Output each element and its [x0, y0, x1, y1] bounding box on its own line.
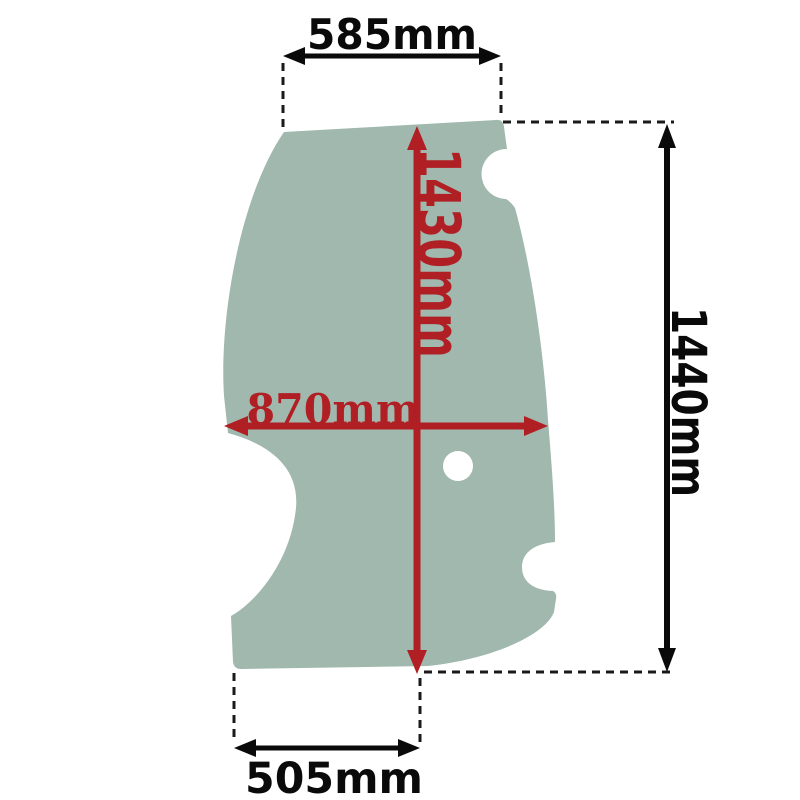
- glass-width-label: 870mm: [247, 385, 420, 434]
- arrowhead-right-icon: [479, 47, 501, 65]
- overall-height-label: 1440mm: [660, 307, 716, 497]
- arrowhead-up-icon: [658, 124, 676, 148]
- glass-height-label: 1430mm: [405, 148, 473, 358]
- bottom-width-dimension: 505mm: [234, 673, 423, 800]
- top-width-label: 585mm: [307, 10, 477, 59]
- dimension-drawing: 585mm 1440mm 1430mm 870mm: [0, 0, 800, 800]
- mounting-hole: [443, 451, 473, 481]
- drawing-canvas: 585mm 1440mm 1430mm 870mm: [0, 0, 800, 800]
- arrowhead-left-icon: [283, 47, 305, 65]
- top-width-dimension: 585mm: [283, 10, 501, 130]
- arrowhead-down-icon: [658, 648, 676, 672]
- bottom-width-label: 505mm: [245, 754, 423, 800]
